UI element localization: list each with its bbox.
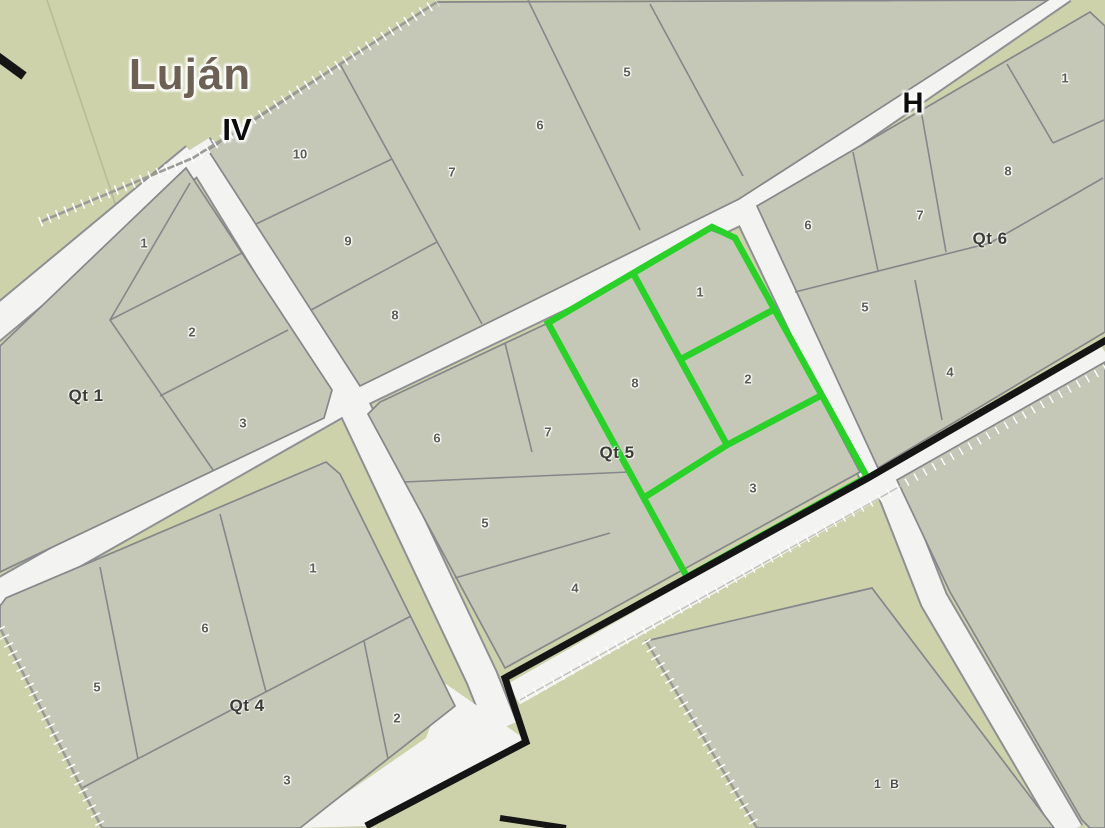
cadastral-map[interactable]: Luján IV H Qt 1 Qt 5 Qt 4 Qt 6 10 9 8 7 … [0, 0, 1105, 828]
map-canvas[interactable] [0, 0, 1105, 828]
